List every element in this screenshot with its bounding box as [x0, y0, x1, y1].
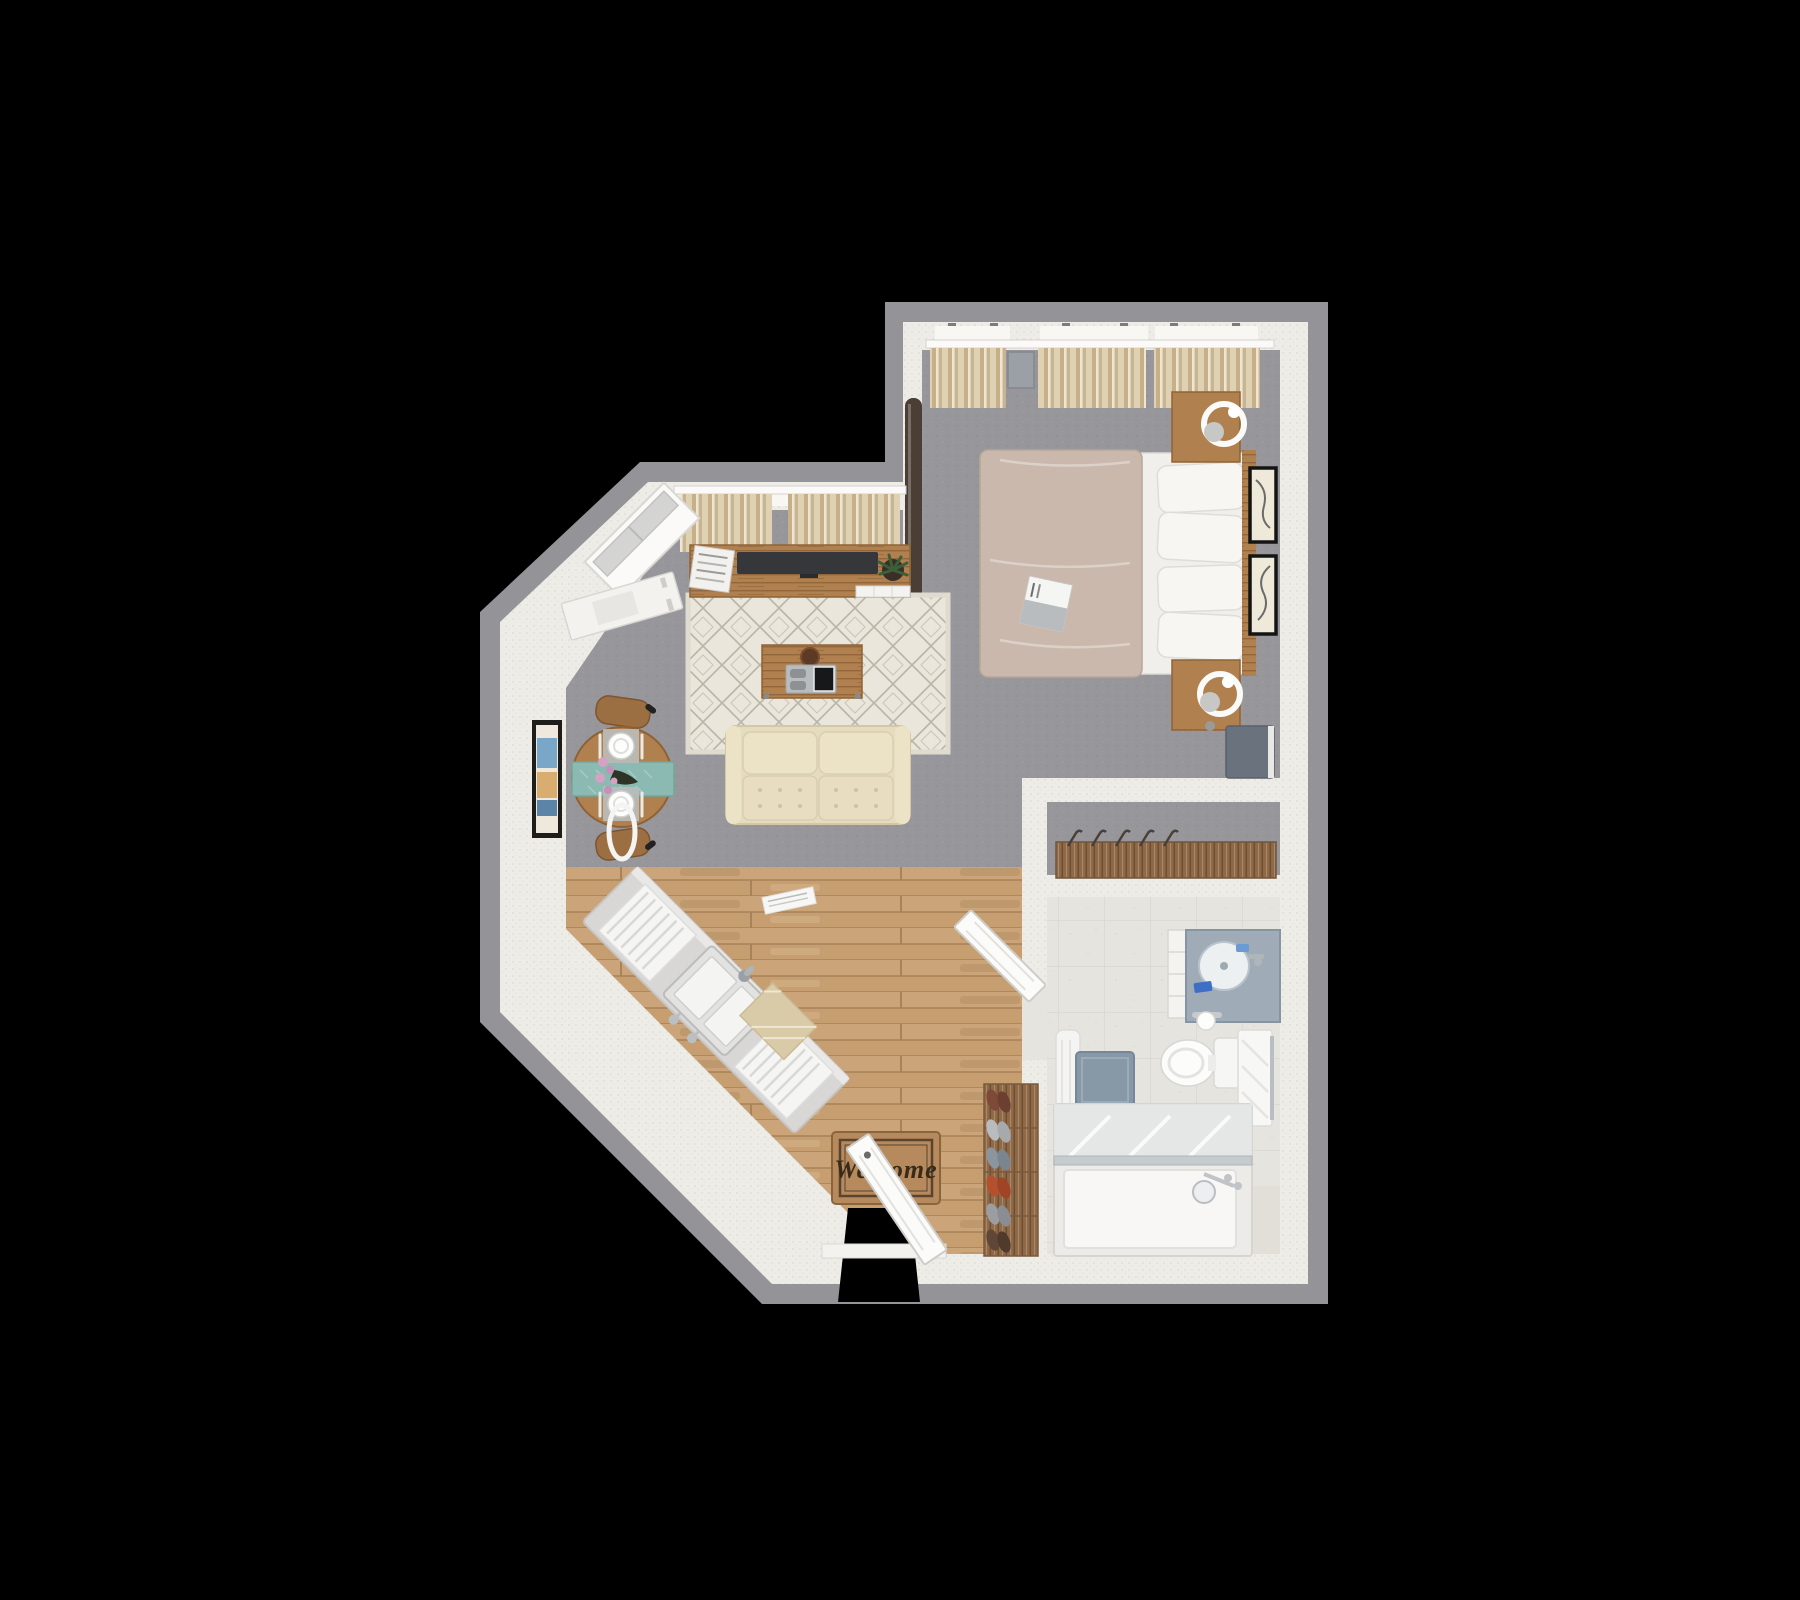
faucet-icon — [1248, 954, 1264, 959]
table-leg — [764, 694, 769, 699]
controller-icon — [790, 669, 806, 678]
pillow — [1157, 612, 1245, 661]
curtain-panel — [788, 494, 900, 552]
pillow — [1157, 512, 1245, 563]
closet-wall-top — [1022, 778, 1280, 802]
coffee-table — [762, 645, 862, 699]
tub-basin — [1064, 1170, 1236, 1248]
tub-handle — [1224, 1174, 1232, 1182]
art-frame — [1250, 468, 1276, 542]
toilet-hinge — [1208, 1055, 1216, 1071]
controller-icon — [790, 681, 806, 690]
sofa-seat-cushion — [819, 776, 893, 820]
console-drawers — [856, 586, 910, 597]
curtain-panel — [1038, 348, 1146, 408]
bed — [980, 450, 1254, 677]
toilet-paper-roll — [1197, 1012, 1215, 1030]
plate — [608, 733, 634, 759]
art-color-blue2 — [537, 800, 557, 816]
bedroom-curtain-rod — [926, 340, 1274, 348]
sofa-seat-cushion — [743, 776, 817, 820]
tub-handle — [1234, 1182, 1242, 1190]
art-frame — [1250, 556, 1276, 634]
wall-vent-panel — [1008, 352, 1034, 388]
pillow — [1157, 462, 1245, 513]
curtain-panel — [930, 348, 1006, 408]
closet — [1022, 778, 1280, 897]
floorplan-scene: Welcome — [0, 0, 1800, 1600]
sofa-arm-right — [895, 726, 910, 824]
tv-stand — [800, 574, 818, 578]
shoe-rack — [984, 1084, 1038, 1256]
drain-icon — [1220, 962, 1228, 970]
nightstand-top — [1172, 392, 1244, 462]
closet-organizer — [1056, 842, 1276, 878]
floorplan-svg: Welcome — [0, 0, 1800, 1600]
toilet — [1161, 1038, 1250, 1088]
wall-art-left — [532, 720, 562, 838]
tv — [737, 552, 878, 574]
newspapers — [689, 545, 734, 592]
bath-mat — [1076, 1052, 1134, 1108]
art-color-blue — [537, 738, 557, 768]
bathtub — [1054, 1104, 1252, 1256]
pillow — [1157, 565, 1245, 613]
bathroom-wall-stub — [1252, 1186, 1280, 1254]
table-leg — [855, 694, 860, 699]
living-curtain-rod — [674, 486, 906, 494]
bowl — [801, 648, 819, 666]
magazine — [1019, 576, 1072, 632]
dresser-panel — [1226, 726, 1274, 778]
showerhead-icon — [1193, 1181, 1215, 1203]
tv-console — [689, 545, 910, 597]
sofa-back-cushion — [743, 732, 817, 774]
sofa-arm-left — [726, 726, 741, 824]
lamp-cord — [1205, 721, 1215, 731]
nightstand-bottom — [1172, 660, 1240, 731]
glass-frame-bar — [1054, 1156, 1252, 1165]
art-color-orange — [537, 772, 557, 798]
living-curtains — [680, 494, 900, 552]
toiletry-blue — [1236, 944, 1249, 952]
sofa-back-cushion — [819, 732, 893, 774]
bathroom-vanity — [1168, 930, 1280, 1022]
sofa — [726, 726, 910, 824]
notebook — [814, 667, 834, 691]
